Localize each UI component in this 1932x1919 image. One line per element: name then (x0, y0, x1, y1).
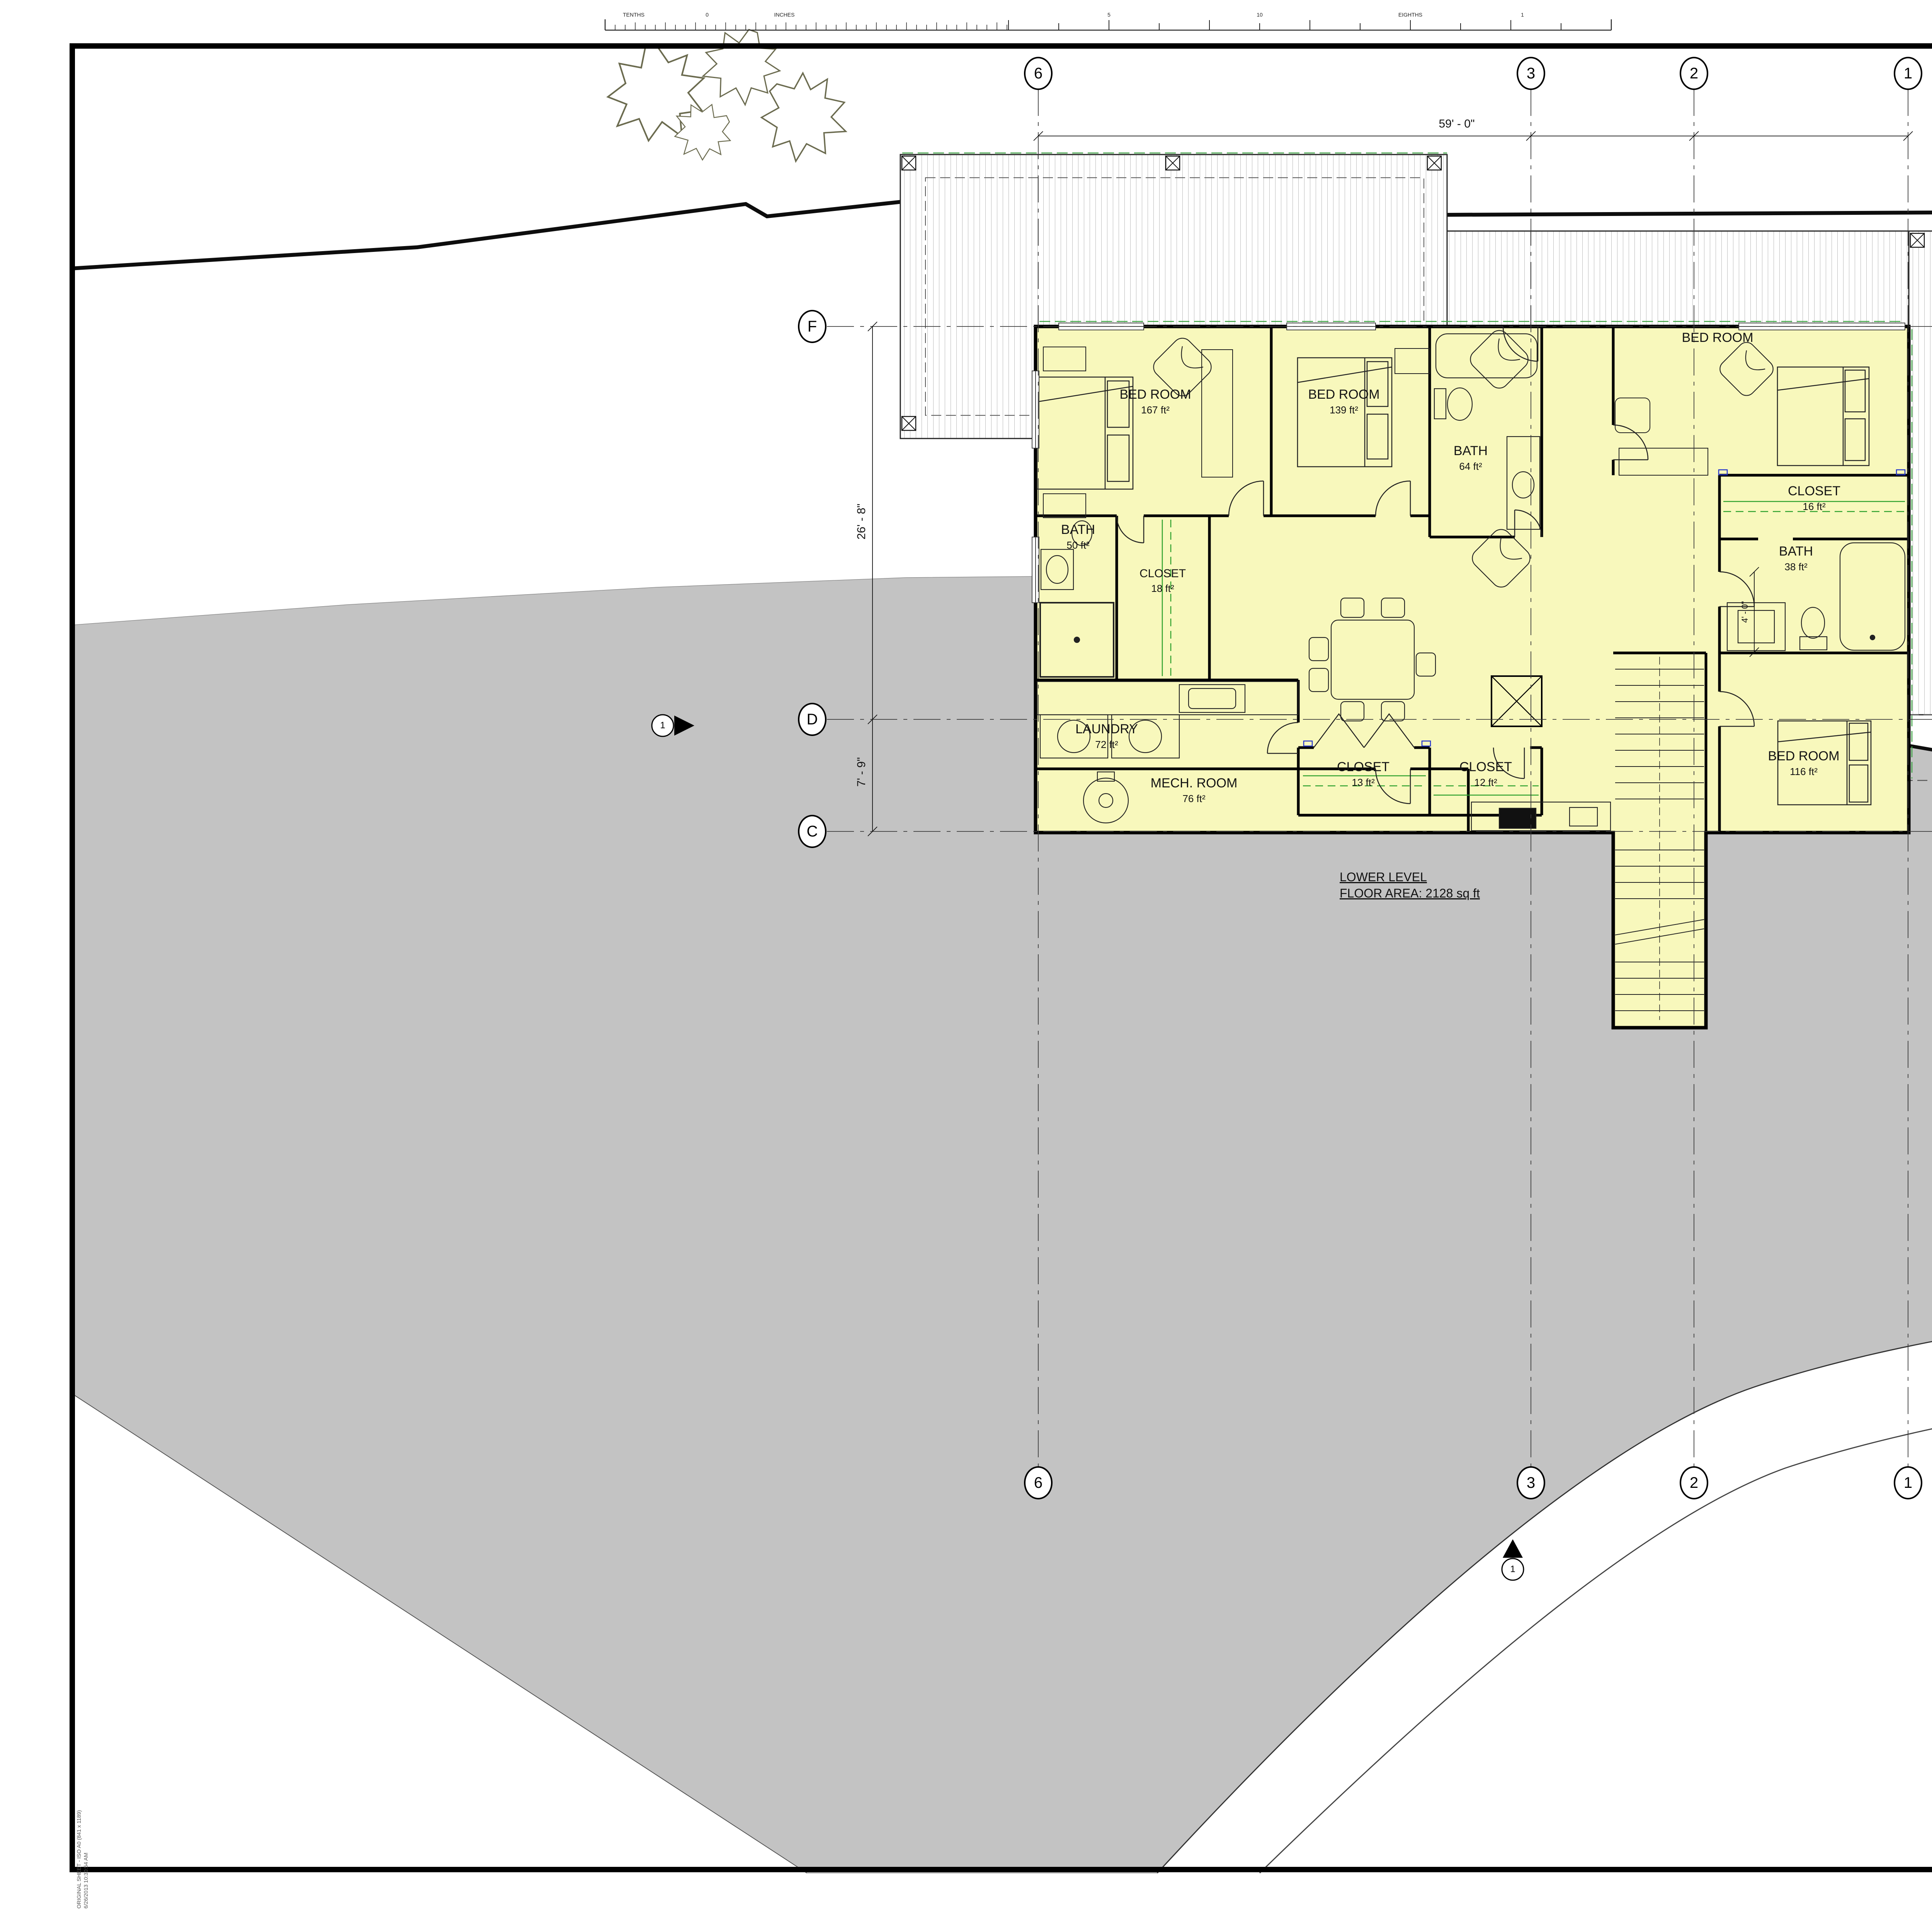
room-area: 50 ft² (1066, 539, 1089, 551)
dimension-stair: 4' - 0" (1740, 601, 1750, 623)
room-label: CLOSET (1788, 484, 1840, 499)
grid-bubble-row: C (798, 815, 827, 848)
plan-floor-area: FLOOR AREA: 2128 sq ft (1340, 886, 1480, 901)
ruler-label: 5 (1107, 12, 1111, 18)
room-label: BED ROOM (1682, 330, 1753, 345)
plot-stamp-line2: 6/26/2013 10:30:54 AM (83, 1853, 89, 1909)
grid-bubble-col: 2 (1680, 1466, 1708, 1499)
dimension-left-upper: 26' - 8" (855, 503, 868, 539)
grid-bubble-col: 1 (1894, 1466, 1922, 1499)
grid-bubble-row: D (798, 703, 827, 736)
room-area: 167 ft² (1141, 404, 1170, 416)
ruler-label: 0 (706, 12, 709, 18)
room-label: CLOSET (1459, 760, 1512, 775)
room-area: 72 ft² (1095, 739, 1118, 751)
drawing-sheet: BED ROOM 167 ft² BED ROOM 139 ft² BED RO… (0, 0, 1932, 1919)
grid-bubble-col: 3 (1517, 57, 1545, 90)
ruler-label: TENTHS (623, 12, 645, 18)
room-label: MECH. ROOM (1151, 776, 1238, 791)
room-area: 139 ft² (1330, 404, 1358, 416)
room-area: 38 ft² (1784, 561, 1807, 573)
room-label: CLOSET (1139, 567, 1186, 580)
room-area: 16 ft² (1803, 501, 1825, 513)
grid-bubble-col: 1 (1894, 57, 1922, 90)
section-marker-number: 1 (660, 720, 665, 731)
sheet-border (70, 43, 1932, 1872)
room-label: BED ROOM (1308, 387, 1379, 402)
grid-bubble-row: F (798, 310, 827, 343)
ruler-label: 10 (1257, 12, 1263, 18)
grid-bubble-col: 2 (1680, 57, 1708, 90)
ruler-label: EIGHTHS (1398, 12, 1422, 18)
room-label: BATH (1061, 522, 1095, 537)
section-marker-number: 1 (1510, 1564, 1515, 1575)
grid-bubble-col: 3 (1517, 1466, 1545, 1499)
room-area: 64 ft² (1459, 461, 1482, 473)
ruler-label: 1 (1521, 12, 1524, 18)
grid-bubble-col: 6 (1024, 57, 1053, 90)
room-label: BED ROOM (1768, 749, 1839, 764)
scale-ruler (605, 19, 1611, 30)
room-area: 13 ft² (1352, 777, 1374, 789)
plot-stamp-line1: ORIGINAL SHEET - ISO A0 (841 x 1189) (76, 1810, 82, 1909)
dimension-top: 59' - 0" (1439, 117, 1475, 131)
room-label: BATH (1779, 544, 1813, 559)
room-area: 116 ft² (1790, 766, 1818, 778)
room-label: BED ROOM (1119, 387, 1191, 402)
room-label: BATH (1454, 444, 1488, 459)
room-label: LAUNDRY (1075, 722, 1138, 737)
ruler-label: INCHES (774, 12, 795, 18)
room-label: CLOSET (1337, 760, 1389, 775)
plan-title: LOWER LEVEL (1340, 870, 1427, 884)
room-area: 12 ft² (1474, 777, 1497, 789)
room-area: 18 ft² (1151, 583, 1174, 595)
room-area: 76 ft² (1182, 793, 1205, 805)
grid-bubble-col: 6 (1024, 1466, 1053, 1499)
dimension-left-lower: 7' - 9" (855, 757, 868, 787)
